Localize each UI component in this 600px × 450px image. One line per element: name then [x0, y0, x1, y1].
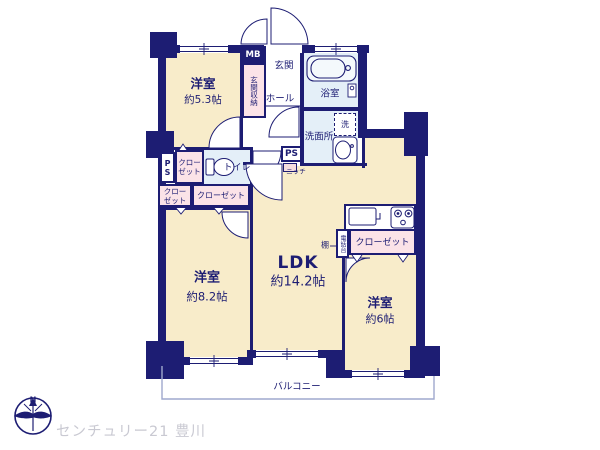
window-ldk: [256, 350, 318, 358]
window-bathroom: [315, 45, 357, 53]
pillar-bottom-right: [410, 346, 440, 376]
pillar-bottom-left: [146, 341, 184, 379]
window-bedroom3: [352, 370, 404, 378]
window-bedroom1: [180, 45, 228, 53]
pillar-top-left: [150, 32, 177, 58]
closet-a-label1: クロー: [178, 158, 201, 167]
wall-washroom-bottom: [300, 163, 367, 166]
entrance-door-gap: [264, 45, 302, 53]
bedroom1-size: 約5.3帖: [184, 94, 222, 106]
closet-wide: クローゼット: [192, 184, 250, 207]
kitchen-counter: [344, 204, 416, 231]
closet-right: クローゼット: [349, 228, 416, 255]
entrance-storage-label: 玄関収納: [249, 76, 260, 106]
wall-bedroom3-left: [342, 256, 345, 370]
shelf-label: 棚: [321, 240, 329, 249]
closet-b-label2: ゼット: [164, 196, 187, 205]
balcony-label: バルコニー: [273, 383, 320, 394]
wall-nook-left: [362, 138, 365, 168]
entrance-storage: 玄関収納: [242, 63, 266, 118]
pipe-space-left: PS: [160, 152, 175, 183]
pipe-space-right-label: PS: [285, 149, 298, 159]
floor-plan-page: { "plan": { "rooms": { "bedroom1": {"nam…: [0, 0, 600, 450]
washer-space: 洗: [334, 113, 356, 136]
wall-bedroom1-bottom: [158, 147, 253, 150]
watermark: センチュリー21 豊川: [56, 420, 206, 441]
closet-wide-label: クローゼット: [197, 190, 245, 201]
entrance-label: 玄関: [274, 62, 293, 73]
entrance-door-arc-icon: [241, 8, 308, 44]
wall-closet-bottom: [158, 207, 253, 210]
closet-right-label: クローゼット: [355, 235, 409, 248]
window-bedroom2: [190, 357, 238, 365]
closet-b-label1: クロー: [164, 187, 187, 196]
phone-stand: 電話台: [336, 229, 349, 258]
bedroom3-size: 約6帖: [366, 314, 395, 327]
washroom-label: 洗面所: [305, 133, 334, 144]
ldk-name: LDK: [277, 254, 318, 274]
wall-bath-wash-divider: [304, 107, 358, 111]
wall-right: [416, 129, 425, 378]
closet-a-label2: ゼット: [178, 167, 201, 176]
bathroom-label: 浴室: [320, 90, 339, 101]
compass-north-label: N: [30, 395, 37, 404]
wall-closet-right: [250, 147, 253, 357]
phone-stand-label: 電話台: [338, 235, 347, 253]
closet-b: クローゼット: [158, 184, 192, 207]
washer-space-label: 洗: [341, 119, 349, 130]
wall-bath-right: [358, 45, 367, 138]
pillar-top-right: [404, 112, 428, 156]
bedroom1-name: 洋室: [190, 77, 215, 91]
hall-label: ホール: [266, 95, 295, 106]
pipe-space-left-label: PS: [163, 159, 172, 177]
closet-a: クローゼット: [175, 150, 204, 184]
bedroom2-name: 洋室: [194, 272, 220, 287]
ldk-size: 約14.2帖: [271, 276, 326, 291]
bedroom2-size: 約8.2帖: [186, 290, 227, 303]
niche-label: ニッチ: [286, 168, 306, 175]
meter-box: MB: [240, 46, 266, 63]
bedroom3-name: 洋室: [367, 296, 392, 310]
meter-box-label: MB: [246, 50, 261, 60]
toilet-label: トイレ: [223, 163, 250, 173]
pipe-space-right: PS: [281, 146, 302, 162]
